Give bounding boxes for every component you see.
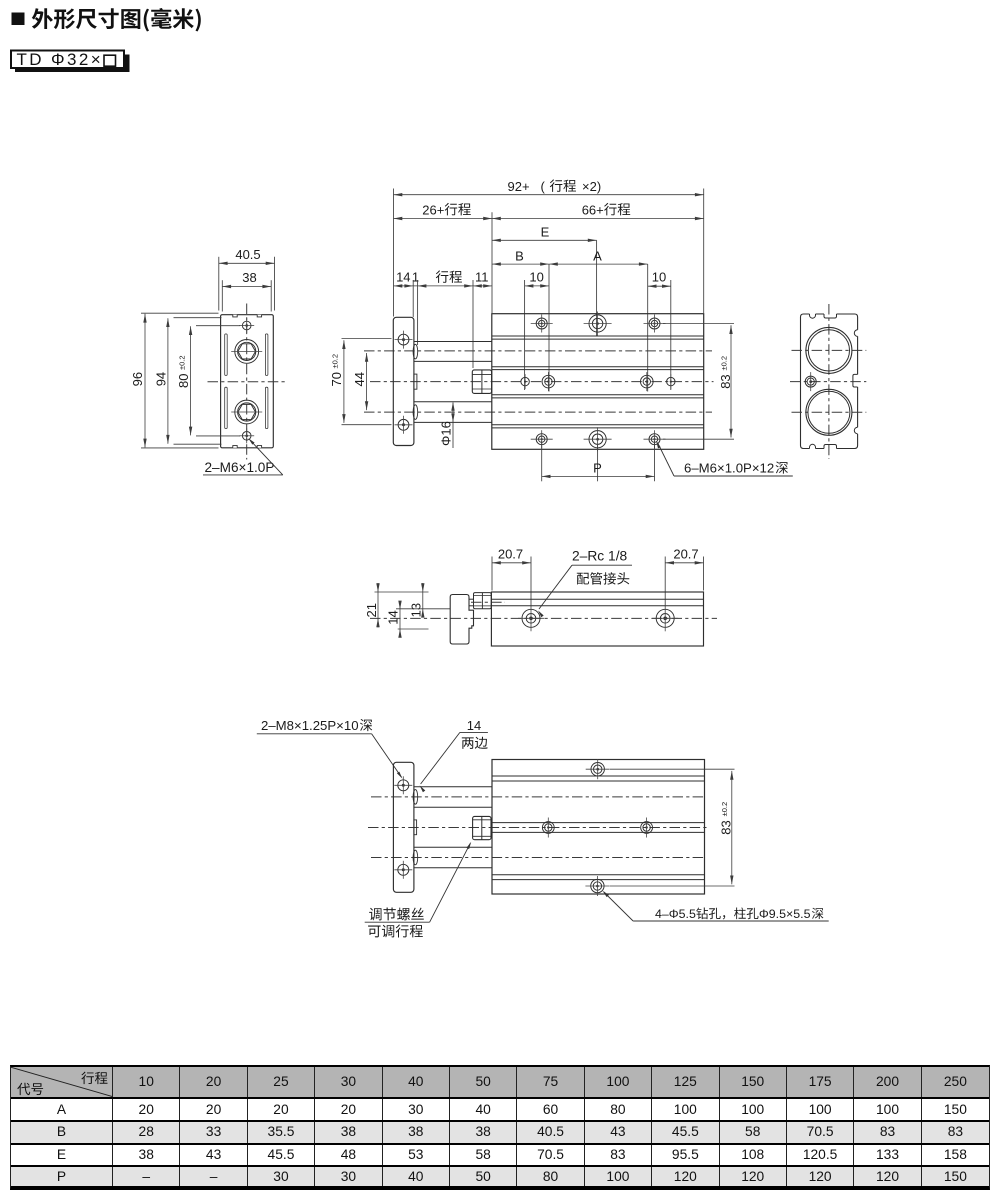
svg-text:96: 96	[130, 372, 145, 386]
svg-text:±0.2: ±0.2	[331, 354, 340, 369]
svg-text:21: 21	[364, 603, 379, 617]
svg-text:26+: 26+	[422, 202, 444, 217]
svg-text:2–M6×1.0P: 2–M6×1.0P	[205, 460, 275, 475]
svg-text:38: 38	[242, 270, 256, 285]
svg-text:Φ16: Φ16	[438, 421, 453, 446]
svg-text:±0.2: ±0.2	[719, 356, 728, 371]
svg-text:92+: 92+	[508, 179, 530, 194]
svg-text:Φ9.5×5.5: Φ9.5×5.5	[759, 907, 811, 921]
svg-text:A: A	[593, 248, 602, 263]
svg-text:2–Rc 1/8: 2–Rc 1/8	[572, 549, 628, 564]
svg-text:14: 14	[467, 718, 481, 733]
svg-text:×2): ×2)	[582, 179, 601, 194]
svg-text:70: 70	[329, 372, 344, 386]
svg-text:10: 10	[529, 269, 543, 284]
svg-text:TD Φ32×: TD Φ32×	[17, 50, 104, 69]
svg-text:14: 14	[385, 610, 400, 624]
svg-text:83: 83	[718, 374, 733, 388]
svg-text:20.7: 20.7	[498, 547, 523, 562]
svg-text:B: B	[515, 248, 524, 263]
svg-text:E: E	[541, 225, 550, 240]
svg-text:13: 13	[408, 603, 423, 617]
svg-text:4–Φ5.5: 4–Φ5.5	[655, 907, 696, 921]
svg-text:P: P	[593, 460, 602, 475]
svg-text:(: (	[541, 179, 546, 194]
svg-text:14: 14	[396, 269, 410, 284]
svg-text:83: 83	[719, 820, 734, 834]
svg-text:10: 10	[652, 269, 666, 284]
svg-text:44: 44	[352, 372, 367, 386]
svg-text:80: 80	[176, 374, 191, 388]
svg-text:94: 94	[153, 372, 168, 386]
svg-text:66+: 66+	[582, 202, 604, 217]
svg-text:±0.2: ±0.2	[720, 802, 729, 817]
svg-text:40.5: 40.5	[235, 247, 260, 262]
svg-text:±0.2: ±0.2	[178, 355, 187, 370]
svg-text:6–M6×1.0P×12: 6–M6×1.0P×12	[684, 460, 774, 475]
svg-text:20.7: 20.7	[673, 547, 698, 562]
svg-text:2–M8×1.25P×10: 2–M8×1.25P×10	[261, 718, 359, 733]
svg-text:11: 11	[475, 269, 489, 284]
